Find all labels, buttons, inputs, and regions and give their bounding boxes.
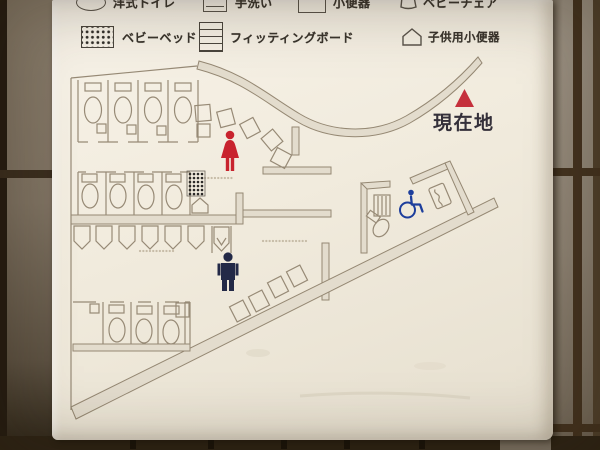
legend-item-fitting-board: フィッティングボード — [199, 22, 354, 52]
legend-label: 手洗い — [235, 0, 273, 11]
western-toilet-icon — [76, 0, 106, 11]
woman-pictogram — [221, 131, 239, 171]
man-pictogram — [218, 252, 239, 291]
womens-sinks — [195, 104, 292, 168]
child-urinal-symbol — [192, 198, 208, 213]
baby-bed-icon — [81, 26, 114, 48]
walls-thin — [71, 66, 452, 410]
legend-item-baby-bed: ベビーベッド — [81, 22, 197, 52]
legend-label: 洋式トイレ — [113, 0, 176, 11]
baby-chair-icon — [398, 0, 418, 11]
hand-wash-sink-icon — [203, 0, 227, 12]
legend-item-child-urinal: 子供用小便器 — [401, 22, 500, 52]
legend-item-baby-chair: ベビーチェア — [398, 0, 498, 14]
legend-label: 子供用小便器 — [428, 29, 500, 45]
urinal-icon — [298, 0, 326, 13]
legend-item-hand-wash: 手洗い — [203, 0, 273, 14]
fitting-board-icon — [199, 22, 223, 52]
legend-item-urinal: 小便器 — [298, 0, 371, 14]
photo-of-restroom-map-sign: 現在地 洋式トイレ 手洗い 小便器 ベビーチェア ベビーベッド フィッティングボ… — [0, 0, 600, 450]
mens-urinals — [74, 226, 231, 253]
legend-label: 小便器 — [333, 0, 371, 11]
floor-plan-map: 現在地 — [0, 0, 600, 450]
legend-label: フィッティングボード — [230, 29, 354, 46]
legend-label: ベビーベッド — [122, 29, 197, 46]
legend-item-western-toilet: 洋式トイレ — [76, 0, 176, 14]
current-location-label: 現在地 — [433, 111, 495, 134]
you-are-here-triangle — [455, 89, 474, 107]
child-urinal-icon — [401, 27, 423, 47]
wheelchair-icon — [400, 190, 423, 218]
surface-smudges — [246, 349, 470, 398]
legend-label: ベビーチェア — [423, 0, 498, 11]
